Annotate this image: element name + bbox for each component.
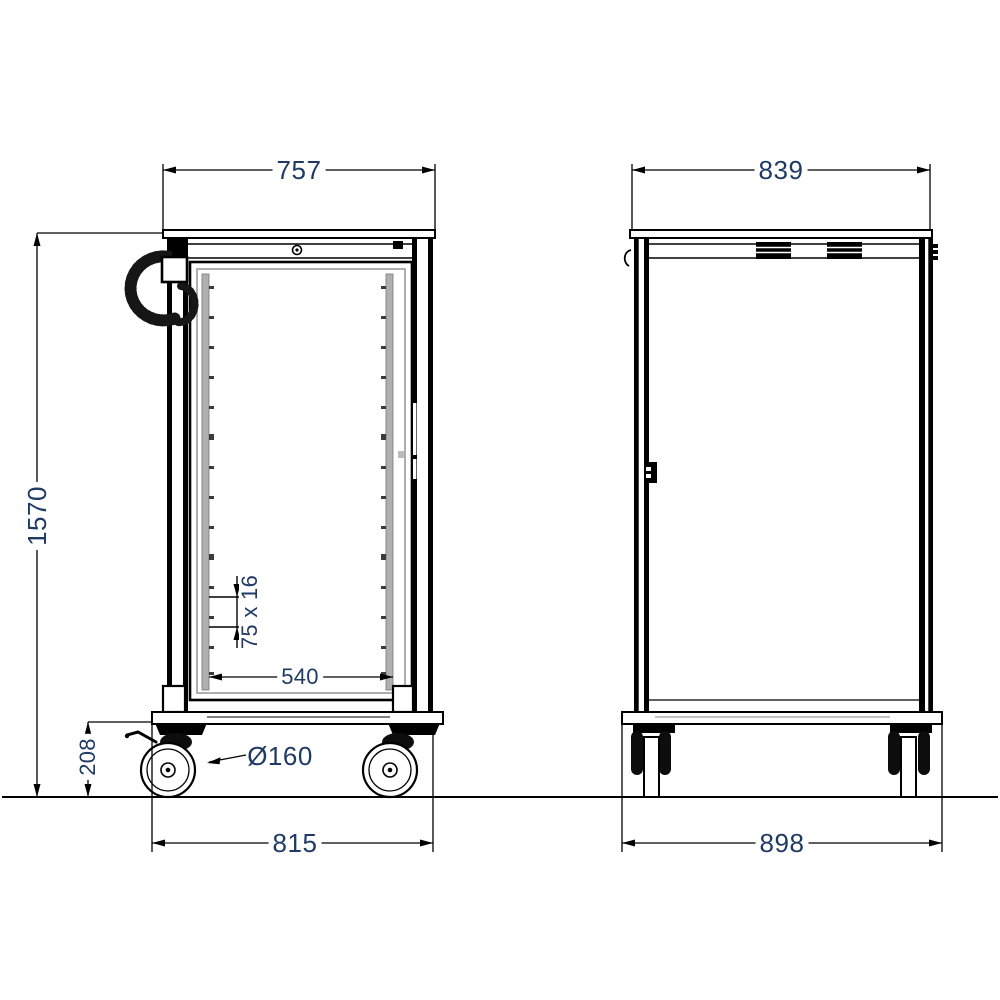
leader-caster-diameter [207, 755, 246, 764]
front-foot-left [163, 686, 185, 712]
drawing-linework [0, 0, 1000, 1000]
front-door [190, 262, 412, 700]
vent-block-left [754, 242, 793, 259]
dim-label-overall-height: 1570 [24, 482, 50, 550]
dim-label-base-height: 208 [77, 734, 99, 780]
cord-bracket [162, 257, 187, 282]
door-stop-hook [625, 250, 631, 266]
side-caster-right [888, 723, 932, 797]
side-roof [630, 230, 932, 238]
front-foot-right [393, 686, 413, 712]
front-top-band [174, 239, 412, 258]
hinge-nubs [933, 244, 938, 260]
front-roof [163, 230, 435, 238]
dim-label-side-depth-base: 898 [756, 830, 809, 856]
dim-label-front-width-base: 815 [269, 830, 322, 856]
side-view [622, 230, 942, 797]
technical-drawing-canvas: 757 839 1570 208 815 898 540 75 x 16 Ø16… [0, 0, 1000, 1000]
side-body [638, 238, 929, 712]
front-caster-right [363, 733, 417, 797]
front-base-plate [152, 712, 443, 735]
side-caster-left [631, 723, 675, 797]
vent-block-right [825, 242, 864, 259]
dim-label-front-width-top: 757 [273, 157, 326, 183]
front-view [125, 230, 443, 797]
front-caster-left [125, 732, 195, 797]
door-latch [645, 462, 657, 483]
dim-label-caster-diameter: Ø160 [243, 743, 317, 769]
dim-label-side-depth-top: 839 [755, 157, 808, 183]
dim-label-rail-detail: 75 x 16 [239, 571, 261, 653]
dim-label-interior-width: 540 [277, 666, 323, 688]
